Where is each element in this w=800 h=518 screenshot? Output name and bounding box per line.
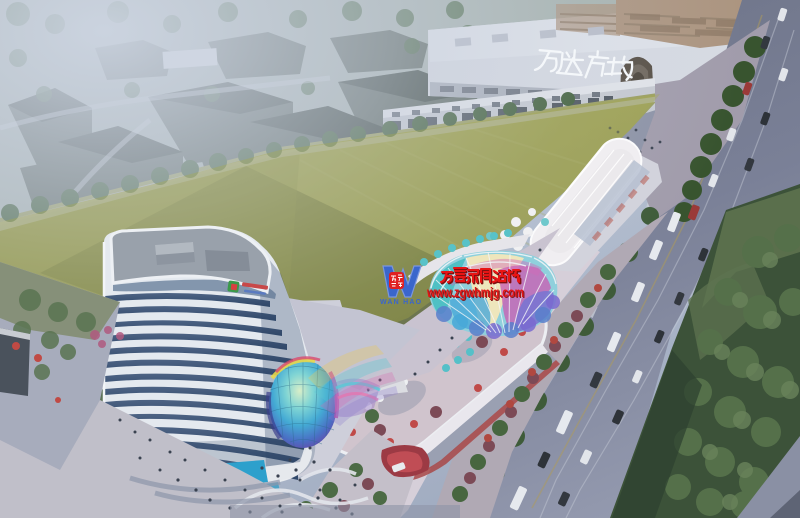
svg-text:www.zgwhmjg.com: www.zgwhmjg.com <box>426 284 524 300</box>
svg-text:WAN HAO: WAN HAO <box>380 299 422 306</box>
